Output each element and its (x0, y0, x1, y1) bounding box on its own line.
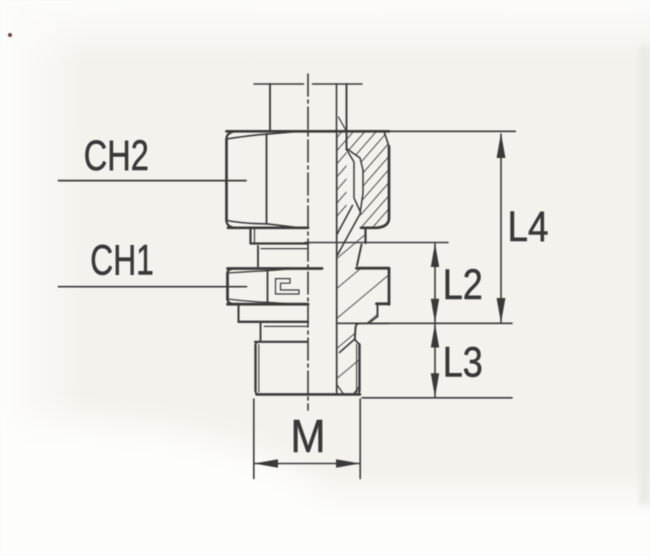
svg-text:CH1: CH1 (90, 238, 154, 285)
svg-text:L3: L3 (443, 339, 483, 386)
svg-text:L2: L2 (443, 262, 483, 309)
svg-text:L4: L4 (508, 204, 549, 251)
svg-text:CH2: CH2 (84, 133, 149, 180)
svg-text:M: M (291, 410, 326, 462)
